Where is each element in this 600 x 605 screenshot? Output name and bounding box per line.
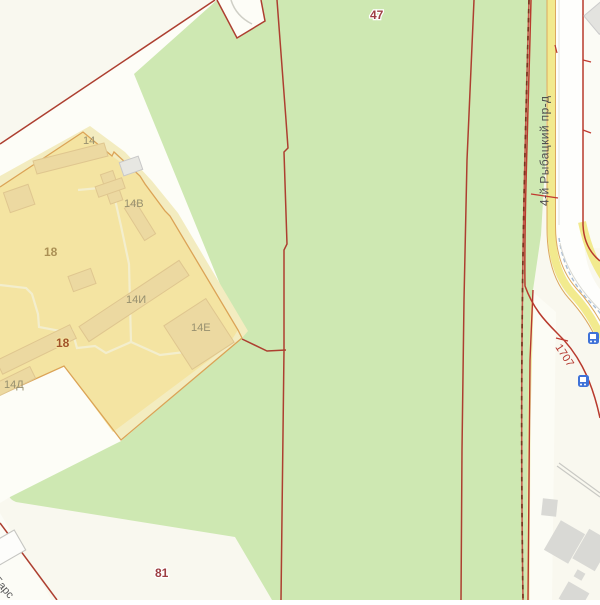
svg-text:14Е: 14Е xyxy=(191,322,211,334)
svg-text:14Д: 14Д xyxy=(4,379,24,391)
svg-text:18: 18 xyxy=(56,336,70,350)
svg-text:81: 81 xyxy=(155,566,169,580)
svg-text:47: 47 xyxy=(370,8,384,22)
svg-text:14И: 14И xyxy=(126,294,146,306)
svg-text:14В: 14В xyxy=(124,198,144,210)
svg-text:14: 14 xyxy=(83,135,95,147)
svg-text:4-й Рыбацкий пр-д: 4-й Рыбацкий пр-д xyxy=(538,96,552,206)
svg-text:18: 18 xyxy=(44,245,58,259)
